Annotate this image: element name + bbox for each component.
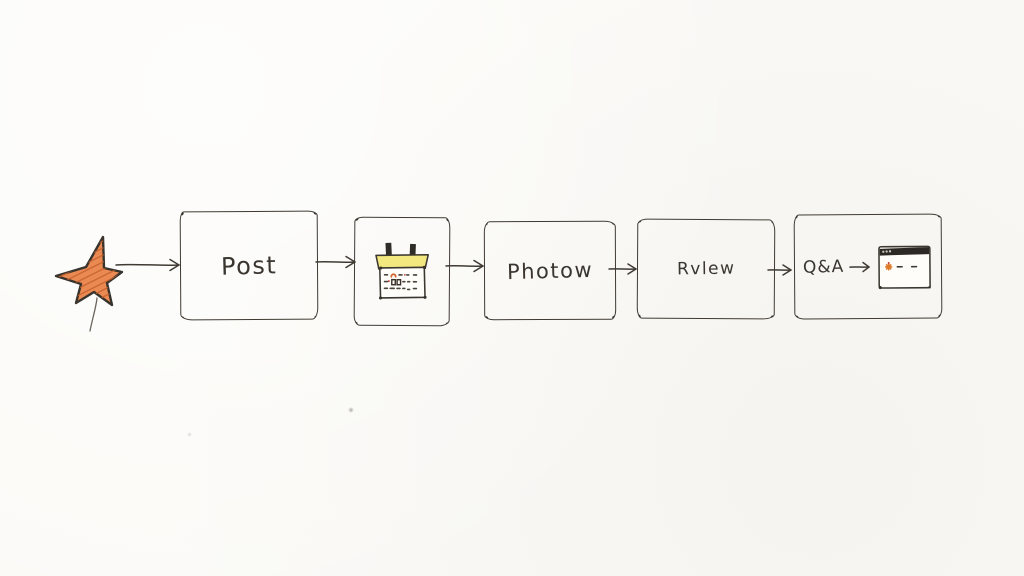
flow-node-schedule (354, 217, 451, 327)
arrow-qa-to-browser (850, 259, 872, 273)
star-icon (46, 226, 138, 338)
calendar-icon (373, 241, 431, 301)
flow-node-qa: Q&A (794, 213, 943, 319)
node-label-photos: Photow (507, 257, 594, 283)
flow-node-photos: Photow (484, 221, 616, 321)
arrow-schedule-to-photos (446, 257, 486, 275)
node-label-qa: Q&A (803, 256, 845, 277)
arrow-start-to-post (116, 256, 182, 274)
paper-speck (187, 432, 192, 437)
flow-node-review: Rvlew (637, 219, 776, 320)
paper-speck (348, 407, 354, 413)
browser-window-icon (876, 242, 932, 290)
node-label-post: Post (221, 251, 278, 281)
node-label-review: Rvlew (677, 259, 736, 280)
hand-drawn-flowchart: Post Photow (0, 0, 1024, 576)
arrow-post-to-schedule (316, 253, 358, 271)
flow-node-post: Post (180, 211, 319, 321)
